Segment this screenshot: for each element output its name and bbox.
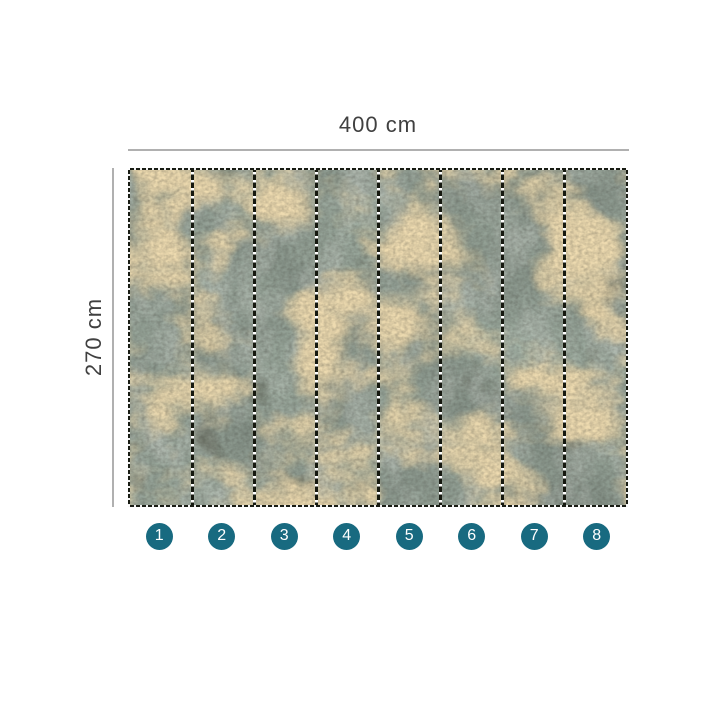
wallpaper-panel-diagram: 400 cm 270 cm: [0, 0, 720, 720]
panel-number-badge: 2: [208, 523, 235, 550]
panel-divider: [191, 170, 194, 505]
height-dimension-line: [112, 168, 114, 507]
panel-numbers: 12345678: [128, 522, 628, 550]
panel-number-badge: 4: [333, 523, 360, 550]
panel-number-badge: 5: [396, 523, 423, 550]
panel-divider: [563, 170, 566, 505]
panel-number-badge: 8: [583, 523, 610, 550]
panel-number-badge: 6: [458, 523, 485, 550]
panel-number-badge: 7: [521, 523, 548, 550]
panel-divider: [439, 170, 442, 505]
perforated-edge-right: [626, 168, 628, 507]
panel-divider: [315, 170, 318, 505]
panel-divider: [253, 170, 256, 505]
panel-number-badge: 1: [146, 523, 173, 550]
perforated-edge-bottom: [128, 505, 628, 507]
width-dimension-label: 400 cm: [128, 112, 628, 138]
height-dimension-label: 270 cm: [81, 287, 107, 387]
panel-number-badge: 3: [271, 523, 298, 550]
panel-divider: [501, 170, 504, 505]
panel-divider: [377, 170, 380, 505]
width-dimension-line: [128, 149, 629, 151]
wallpaper-preview: [128, 168, 628, 507]
